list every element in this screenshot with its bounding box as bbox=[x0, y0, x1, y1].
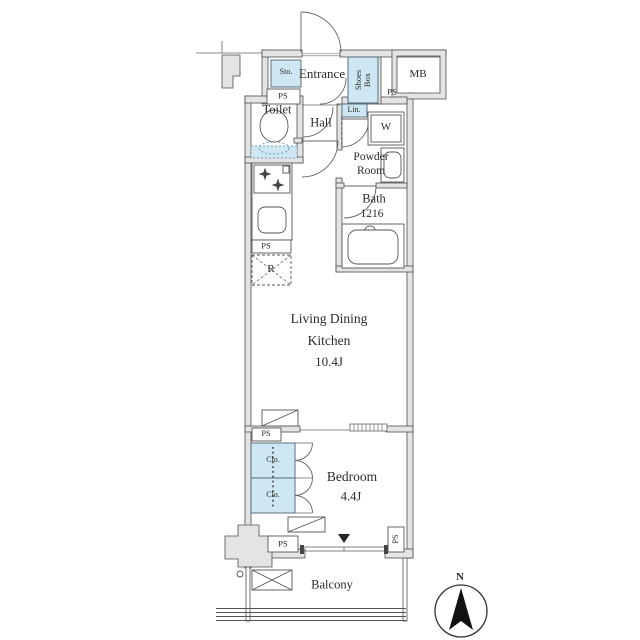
wall-powder-bath bbox=[376, 183, 407, 188]
ac-unit-outdoor bbox=[252, 570, 292, 590]
entrance-door bbox=[301, 12, 341, 56]
sliding-door bbox=[300, 424, 387, 431]
wall-left bbox=[245, 96, 251, 568]
bedroom-label: Bedroom bbox=[327, 470, 377, 484]
closet-label: Clo. bbox=[266, 491, 280, 499]
wall-hall-south-stub bbox=[294, 138, 302, 143]
ldk-label: Living Dining bbox=[291, 312, 368, 326]
refrigerator-label: R bbox=[267, 264, 274, 276]
shoes-box-label: Shoes Box bbox=[354, 62, 372, 98]
ps-label: PS bbox=[262, 430, 271, 438]
ldk-size-label: 10.4J bbox=[315, 355, 343, 369]
wall-top-left bbox=[262, 50, 302, 57]
wall-right bbox=[407, 93, 413, 558]
bedroom-window bbox=[302, 547, 386, 551]
ps-label: PS bbox=[387, 88, 396, 97]
bedroom-size-label: 4.4J bbox=[341, 490, 362, 503]
window-direction-marker bbox=[338, 534, 350, 543]
storage-label: Sto. bbox=[280, 68, 293, 76]
compass bbox=[435, 585, 487, 637]
drain-icon bbox=[237, 571, 243, 577]
window-cap bbox=[300, 545, 304, 554]
pipe-space-box bbox=[252, 240, 291, 253]
toilet-label: Toilet bbox=[263, 103, 292, 116]
ps-label: PS bbox=[278, 92, 287, 101]
wall-bath-west bbox=[336, 178, 342, 272]
wall-powder-bath-stub bbox=[336, 183, 344, 188]
bath-label: Bath bbox=[362, 192, 386, 205]
entrance-label: Entrance bbox=[299, 67, 345, 81]
ps-label: PS bbox=[278, 540, 287, 549]
north-label: N bbox=[456, 572, 464, 584]
ldk-label-2: Kitchen bbox=[308, 334, 351, 348]
hall-label: Hall bbox=[310, 116, 332, 129]
floorplan-page: Entrance Sto. PS Shoes Box PS MB Toilet … bbox=[0, 0, 640, 640]
toilet-counter bbox=[251, 146, 297, 158]
kitchen-sink bbox=[258, 207, 286, 233]
window-cap bbox=[384, 545, 388, 554]
structural-column-bottomleft bbox=[225, 525, 272, 567]
stove-panel bbox=[283, 166, 289, 173]
ps-label: PS bbox=[261, 242, 270, 251]
ps-label: PS bbox=[392, 535, 400, 544]
balcony-railing bbox=[216, 609, 406, 621]
closet-label: Clo. bbox=[266, 456, 280, 464]
powder-room-door bbox=[341, 117, 369, 147]
balcony-wall-right bbox=[403, 558, 407, 621]
powder-room-label-2: Room bbox=[357, 165, 385, 177]
hall-ldk-door bbox=[302, 141, 338, 177]
meter-box-label: MB bbox=[409, 69, 426, 81]
structural-column-topleft bbox=[222, 55, 240, 88]
neighbor-outline bbox=[196, 41, 262, 53]
balcony-label: Balcony bbox=[311, 578, 353, 591]
wall-partition-right bbox=[386, 426, 413, 432]
bath-size-label: 1216 bbox=[361, 208, 384, 220]
wall-toilet-east bbox=[297, 96, 303, 163]
linen-label: Lin. bbox=[347, 106, 360, 114]
washing-machine-label: W bbox=[381, 122, 391, 134]
powder-room-label: Powder bbox=[353, 151, 388, 163]
closet-doors bbox=[295, 443, 313, 513]
bathtub bbox=[348, 230, 398, 264]
